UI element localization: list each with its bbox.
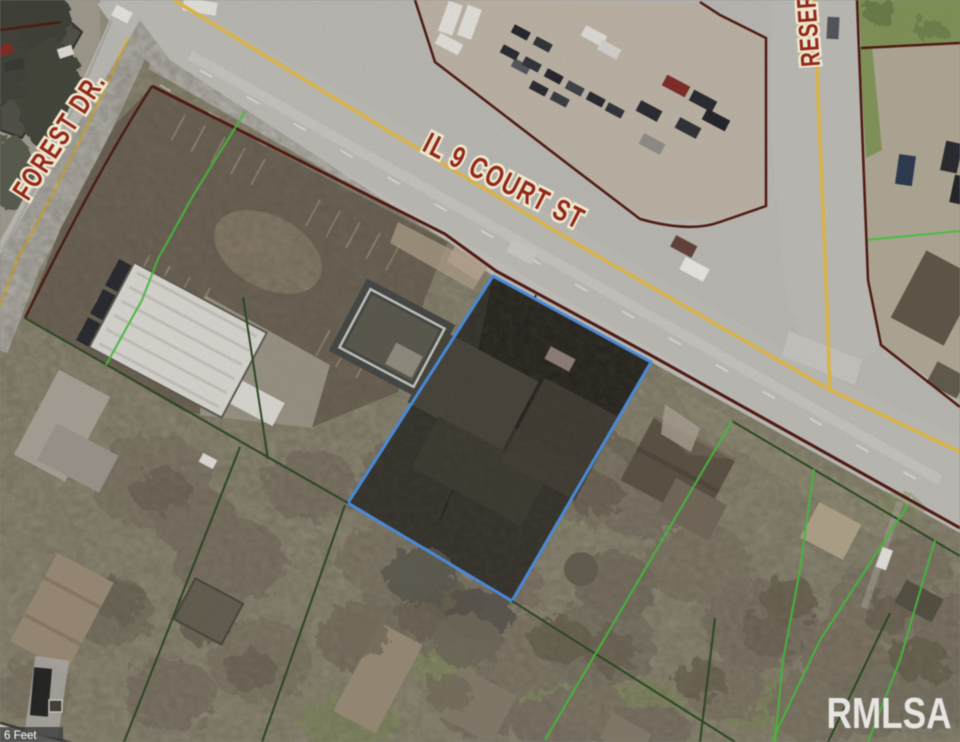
svg-text:RMLSA: RMLSA <box>826 689 951 738</box>
svg-text:6 Feet: 6 Feet <box>4 730 37 742</box>
